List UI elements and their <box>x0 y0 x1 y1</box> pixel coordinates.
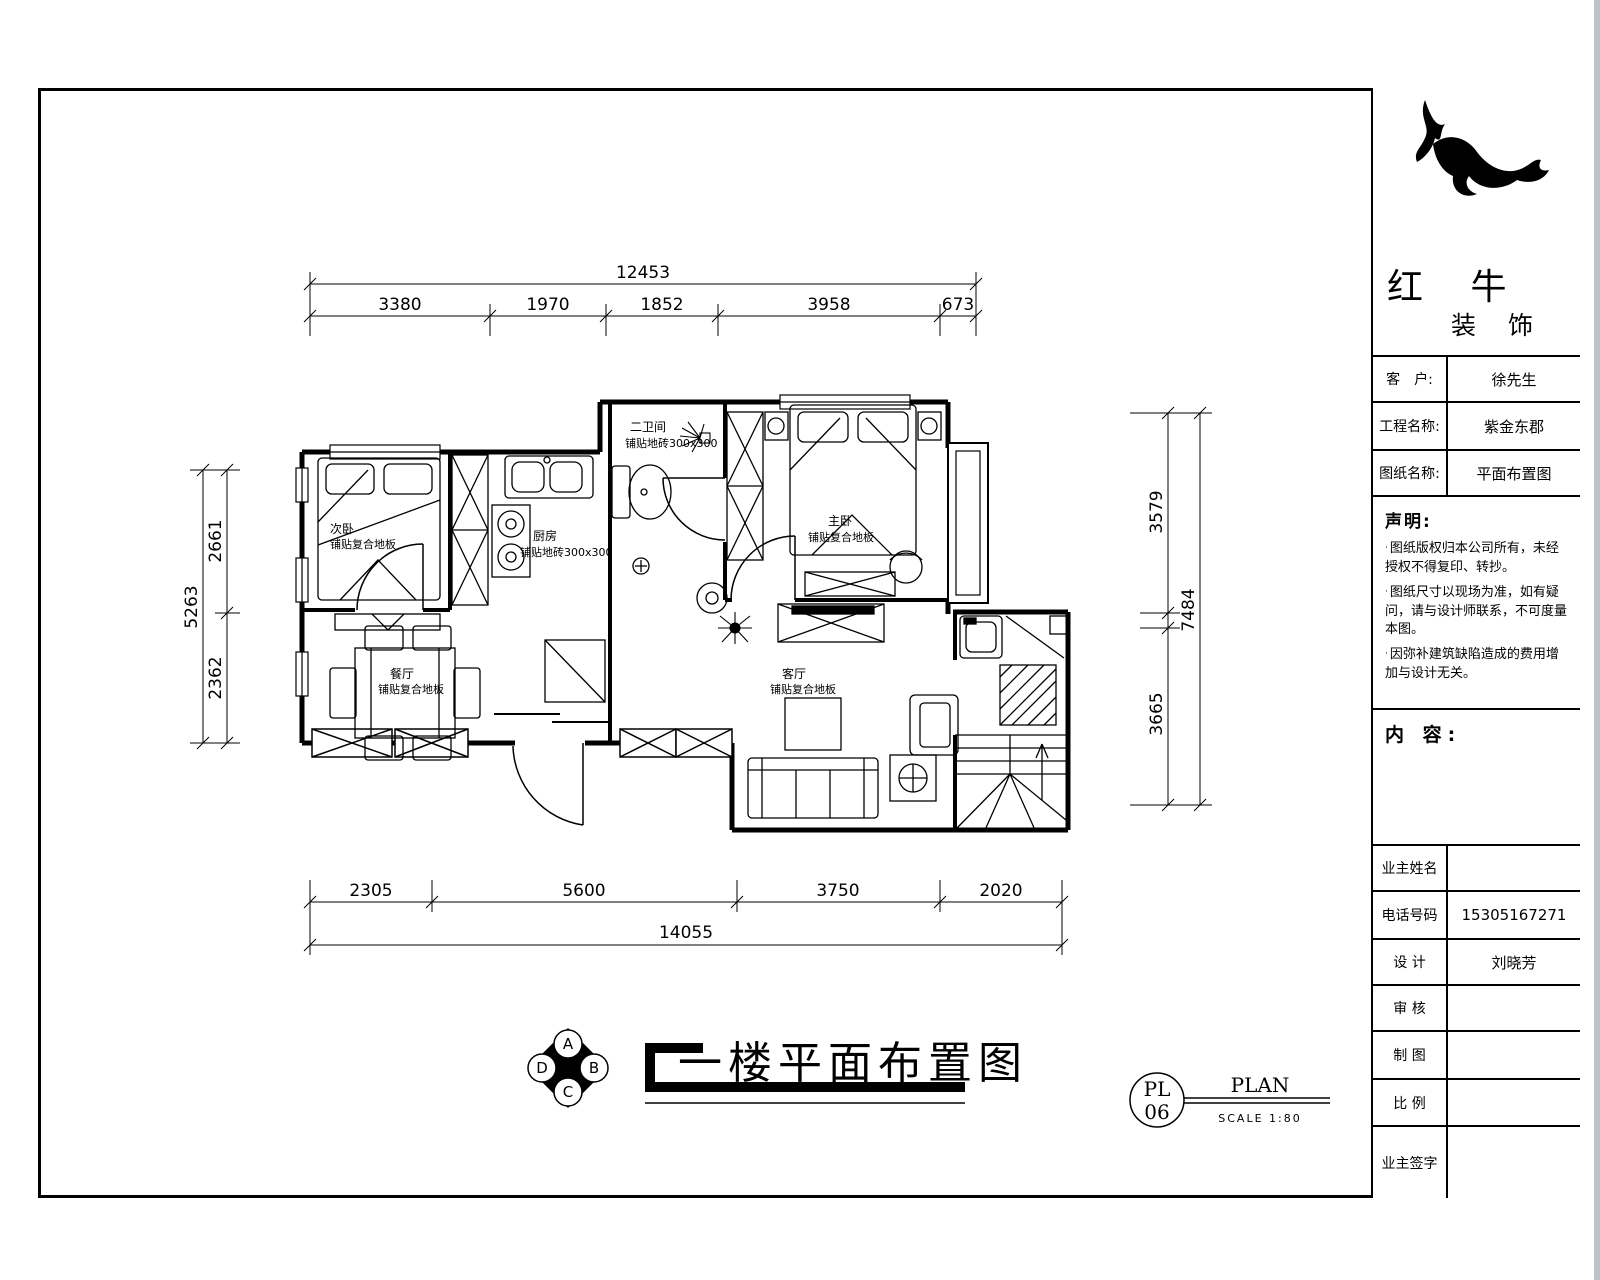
row-scale: 比 例 <box>1373 1080 1580 1127</box>
field-project-label: 工程名称: <box>1373 403 1448 449</box>
title-block: 红 牛 装 饰 客 户: 徐先生 工程名称: 紫金东郡 图纸名称: 平面布置图 … <box>1371 88 1580 1198</box>
window-master-top-icon <box>780 395 910 409</box>
room-label-dining: 餐厅 <box>390 666 414 681</box>
room-finish-master-bedroom: 铺贴复合地板 <box>808 530 874 544</box>
company-logo-section: 红 牛 装 饰 <box>1373 88 1580 357</box>
stamp-number: 06 <box>1144 1100 1169 1124</box>
room-finish-bathroom: 铺贴地砖300x300 <box>625 436 718 450</box>
compass-letter-b: B <box>589 1059 599 1077</box>
fridge-icon <box>545 640 605 702</box>
stamp-code: PL <box>1144 1077 1171 1101</box>
wardrobe-master-icon <box>727 412 763 560</box>
compass-letter-a: A <box>563 1035 574 1053</box>
dim-bottom-seg2: 5600 <box>562 881 605 901</box>
field-drawing-value: 平面布置图 <box>1448 451 1580 495</box>
room-label-secondary-bedroom: 次卧 <box>330 522 354 536</box>
row-owner-signature: 业主签字 <box>1373 1127 1580 1198</box>
dim-top-seg3: 1852 <box>640 295 683 315</box>
dim-left-total: 5263 <box>182 585 202 628</box>
field-project-value: 紫金东郡 <box>1448 403 1580 449</box>
room-label-bathroom: 二卫间 <box>630 420 666 434</box>
sheet-title: 一楼平面布置图 <box>678 1038 1028 1089</box>
room-label-living: 客厅 <box>782 666 806 681</box>
basin-icon <box>697 583 727 613</box>
row-draftsman: 制 图 <box>1373 1032 1580 1080</box>
dim-bottom-seg1: 2305 <box>349 881 392 901</box>
window-bottom-mid-icon <box>620 729 732 757</box>
coffee-table-icon <box>785 698 841 750</box>
field-customer-label: 客 户: <box>1373 357 1448 401</box>
row-designer: 设 计 刘晓芳 <box>1373 940 1580 986</box>
floor-plan-canvas: 次卧 铺贴复合地板 厨房 铺贴地砖300x300 二卫间 铺贴地砖300x300… <box>0 0 1600 1280</box>
statement-list: ·图纸版权归本公司所有，未经授权不得复印、转抄。 ·图纸尺寸以现场为准，如有疑问… <box>1385 540 1570 684</box>
stamp-scale: SCALE 1:80 <box>1218 1112 1301 1125</box>
tv-cabinet-icon <box>778 604 884 642</box>
dresser-master-icon <box>805 572 895 596</box>
plant-icon <box>718 612 752 644</box>
plan-stamp: PL 06 PLAN SCALE 1:80 <box>1130 1073 1330 1127</box>
wardrobe-secondary-icon <box>452 455 488 605</box>
window-bedroom2-top-icon <box>330 445 440 459</box>
dim-left-seg1: 2661 <box>206 519 226 562</box>
bath-door-icon <box>663 478 725 540</box>
armchair-icon <box>910 695 958 755</box>
statement-item: ·图纸版权归本公司所有，未经授权不得复印、转抄。 <box>1385 540 1570 578</box>
designer-name: 刘晓芳 <box>1448 940 1580 984</box>
room-finish-secondary-bedroom: 铺贴复合地板 <box>330 537 396 551</box>
dim-top-seg5: 673 <box>942 295 974 315</box>
window-bottom-left-icon <box>312 729 468 757</box>
side-table-icon <box>890 755 936 801</box>
sheet-title-group: 一楼平面布置图 <box>645 1038 1028 1103</box>
dim-top-seg1: 3380 <box>378 295 421 315</box>
dim-bottom-total: 14055 <box>659 923 713 943</box>
field-drawing-label: 图纸名称: <box>1373 451 1448 495</box>
statement-heading: 声明: <box>1385 507 1570 532</box>
kitchen-sink-icon <box>505 456 593 498</box>
entry-door-icon <box>513 743 583 825</box>
sofa-icon <box>748 758 878 818</box>
sideboard-icon <box>335 614 440 630</box>
dimension-right <box>1130 407 1212 811</box>
window-left-wall-icon <box>296 468 308 696</box>
field-project: 工程名称: 紫金东郡 <box>1373 403 1580 451</box>
dimension-bottom <box>304 880 1068 955</box>
statement-item: ·因弥补建筑缺陷造成的费用增加与设计无关。 <box>1385 646 1570 684</box>
dim-right-seg2: 3665 <box>1147 692 1167 735</box>
field-drawing: 图纸名称: 平面布置图 <box>1373 451 1580 497</box>
room-finish-living: 铺贴复合地板 <box>770 682 836 696</box>
dim-top-seg2: 1970 <box>526 295 569 315</box>
room-labels: 次卧 铺贴复合地板 厨房 铺贴地砖300x300 二卫间 铺贴地砖300x300… <box>330 420 874 696</box>
statement-section: 声明: ·图纸版权归本公司所有，未经授权不得复印、转抄。 ·图纸尺寸以现场为准，… <box>1373 497 1580 710</box>
field-customer-value: 徐先生 <box>1448 357 1580 401</box>
kitchen-sliding-door-icon <box>494 714 608 722</box>
company-name: 红 牛 <box>1387 258 1524 310</box>
dim-top-total: 12453 <box>616 263 670 283</box>
stairs-icon <box>955 735 1068 830</box>
dim-right-seg1: 3579 <box>1147 490 1167 533</box>
compass: A B C D <box>528 1028 608 1108</box>
row-reviewer: 审 核 <box>1373 986 1580 1032</box>
room-label-master-bedroom: 主卧 <box>828 514 852 528</box>
room-finish-dining: 铺贴复合地板 <box>378 682 444 696</box>
compass-letter-c: C <box>563 1083 573 1101</box>
content-heading: 内 容: <box>1385 720 1580 747</box>
room-label-kitchen: 厨房 <box>533 528 557 543</box>
statement-item: ·图纸尺寸以现场为准，如有疑问，请与设计师联系，不可度量本图。 <box>1385 584 1570 641</box>
dim-bottom-seg3: 3750 <box>816 881 859 901</box>
dim-right-total: 7484 <box>1179 588 1199 631</box>
compass-letter-d: D <box>536 1059 548 1077</box>
balcony-bay-window <box>948 443 988 603</box>
row-owner-name: 业主姓名 <box>1373 846 1580 892</box>
stove-icon <box>492 505 530 577</box>
row-phone: 电话号码 15305167271 <box>1373 892 1580 940</box>
stamp-label: PLAN <box>1231 1073 1290 1097</box>
dimension-texts: 12453 3380 1970 1852 3958 673 2305 5600 … <box>182 263 1199 943</box>
phone-number: 15305167271 <box>1448 892 1580 938</box>
dim-left-seg2: 2362 <box>206 656 226 699</box>
dim-bottom-seg4: 2020 <box>979 881 1022 901</box>
field-customer: 客 户: 徐先生 <box>1373 357 1580 403</box>
nightstand-icon <box>765 412 941 440</box>
dim-top-seg4: 3958 <box>807 295 850 315</box>
floor-drain-icon <box>633 558 649 574</box>
doors <box>357 478 795 825</box>
drawing-sheet: 次卧 铺贴复合地板 厨房 铺贴地砖300x300 二卫间 铺贴地砖300x300… <box>0 0 1600 1280</box>
bull-logo-icon <box>1373 88 1580 248</box>
company-subname: 装 饰 <box>1451 306 1545 342</box>
stair-void-hatch <box>1000 665 1056 725</box>
room-finish-kitchen: 铺贴地砖300x300 <box>520 545 613 559</box>
toilet-icon <box>612 465 671 519</box>
content-section: 内 容: <box>1373 710 1580 846</box>
stair-basin-icon <box>960 616 1068 658</box>
